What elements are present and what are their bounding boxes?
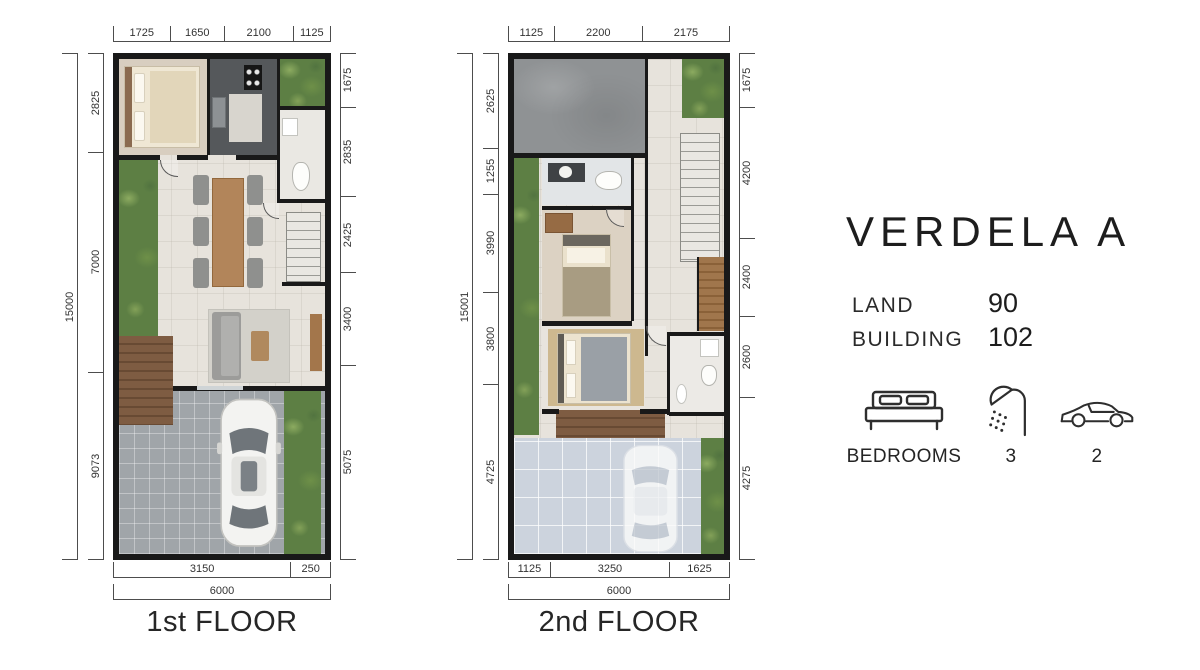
entry-glass-door	[197, 386, 242, 390]
feature-garage: 2	[1055, 384, 1139, 468]
spec-land-value: 90	[988, 288, 1018, 319]
bathroom-door-arc	[263, 203, 278, 219]
dim-label: 4725	[485, 460, 497, 484]
wardrobe	[699, 257, 724, 331]
dim-label: 3400	[342, 307, 354, 331]
bathroom-3	[669, 334, 724, 416]
garden-top-right	[682, 59, 724, 118]
floorplan-1st-floor	[113, 53, 331, 560]
plan1-left-dims: 2825 7000 9073	[88, 53, 104, 560]
vanity-counter	[548, 163, 585, 183]
dim-label: 2100	[225, 27, 293, 39]
dim-label: 2175	[643, 27, 729, 39]
dim-label: 4200	[741, 161, 753, 185]
dim-label: 3800	[485, 326, 497, 350]
coffee-table	[251, 331, 270, 361]
bed	[124, 66, 200, 149]
dim-label: 5075	[342, 450, 354, 474]
plan2-top-dims: 1125 2200 2175	[508, 26, 730, 42]
floorplan-sheet: 1725 1650 2100 1125 15000 2825 7000 9073…	[0, 0, 1200, 670]
plan1-top-dims: 1725 1650 2100 1125	[113, 26, 331, 42]
dim-label: 250	[291, 563, 330, 575]
car-icon	[1058, 384, 1136, 438]
plan-title: VERDELA A	[846, 208, 1131, 256]
shelf	[545, 213, 573, 233]
dim-label: 9073	[90, 454, 102, 478]
dim-label: 1255	[485, 159, 497, 183]
roof-void	[514, 59, 646, 153]
side-garden	[514, 153, 539, 435]
dining-table	[212, 178, 244, 287]
plan2-left-dims: 2625 1255 3990 3800 4725	[483, 53, 499, 560]
kitchen-cabinet	[212, 97, 226, 128]
kitchen	[208, 59, 278, 155]
toilet	[701, 365, 717, 386]
plan2-left-total-dim: 15001	[457, 53, 473, 560]
dim-label: 1625	[670, 563, 729, 575]
bathroom-1	[278, 109, 325, 201]
feature-bathrooms-count: 3	[1005, 446, 1016, 468]
sofa	[212, 312, 241, 379]
stove	[244, 65, 262, 90]
shower-drain	[676, 384, 687, 404]
dim-label: 2625	[485, 89, 497, 113]
dim-label: 1725	[114, 27, 170, 39]
feature-bathrooms: 3	[979, 384, 1043, 468]
floor-2-label: 2nd FLOOR	[508, 606, 730, 639]
dim-label: 3150	[114, 563, 290, 575]
dim-label: 2425	[342, 222, 354, 246]
bathroom-2	[542, 158, 630, 205]
garden-top-right	[278, 59, 325, 109]
wood-deck	[119, 336, 173, 425]
dim-label: 3990	[485, 231, 497, 255]
car-top-view-ghost	[619, 443, 682, 554]
dim-label: 6000	[114, 585, 330, 597]
floor-1-label: 1st FLOOR	[113, 606, 331, 639]
stairs	[286, 212, 321, 281]
tv-console	[310, 314, 322, 371]
dim-label: 1125	[509, 563, 550, 575]
feature-bedrooms-label: BEDROOMS	[847, 446, 962, 468]
toilet	[595, 171, 621, 190]
bed-icon	[860, 384, 948, 438]
plan1-bottom-total-dim: 6000	[113, 584, 331, 600]
dim-label: 2400	[741, 265, 753, 289]
car-top-view	[216, 396, 282, 549]
dim-label: 7000	[90, 250, 102, 274]
dim-label: 2600	[741, 344, 753, 368]
master-bed	[557, 333, 631, 404]
dim-label: 6000	[509, 585, 729, 597]
toilet	[292, 162, 310, 191]
plan1-bottom-dims: 3150 250	[113, 562, 331, 578]
feature-bedrooms: BEDROOMS	[848, 384, 960, 468]
bedroom-2	[542, 209, 630, 321]
spec-land-label: LAND	[852, 294, 988, 318]
master-door-arc	[646, 326, 666, 346]
feature-garage-count: 2	[1091, 446, 1102, 468]
dim-label: 2200	[555, 27, 642, 39]
floorplan-2nd-floor	[508, 53, 730, 560]
kitchen-counter	[229, 94, 263, 142]
dim-label: 2835	[342, 139, 354, 163]
plan2-bottom-total-dim: 6000	[508, 584, 730, 600]
bedroom-door-arc	[160, 160, 177, 177]
plan2-bottom-dims: 1125 3250 1625	[508, 562, 730, 578]
plan2-right-dims: 1675 4200 2400 2600 4275	[739, 53, 755, 560]
spec-building-value: 102	[988, 322, 1033, 353]
carport-garden-strip	[284, 391, 321, 554]
bed	[562, 234, 611, 317]
bedroom-1	[119, 59, 208, 155]
dim-label: 15000	[64, 291, 76, 322]
dim-label: 3250	[551, 563, 669, 575]
sink	[700, 339, 719, 357]
spec-building: BUILDING 102	[852, 322, 1033, 353]
shower-icon	[987, 384, 1035, 438]
feature-row: BEDROOMS 3	[848, 384, 1139, 468]
dim-label: 1650	[171, 27, 224, 39]
dim-label: 1125	[509, 27, 554, 39]
garden-bottom-right	[701, 438, 724, 554]
dim-label: 4275	[741, 466, 753, 490]
dim-label: 2825	[90, 91, 102, 115]
stairs	[680, 133, 720, 262]
dim-label: 15001	[459, 291, 471, 322]
side-garden	[119, 159, 158, 337]
dining-set	[193, 173, 263, 292]
spec-land: LAND 90	[852, 288, 1018, 319]
balcony-deck	[556, 410, 665, 437]
dim-label: 1675	[342, 68, 354, 92]
dim-label: 1125	[294, 27, 330, 39]
sink	[282, 118, 297, 136]
plan1-left-total-dim: 15000	[62, 53, 78, 560]
plan1-right-dims: 1675 2835 2425 3400 5075	[340, 53, 356, 560]
dim-label: 1675	[741, 68, 753, 92]
spec-building-label: BUILDING	[852, 328, 988, 352]
